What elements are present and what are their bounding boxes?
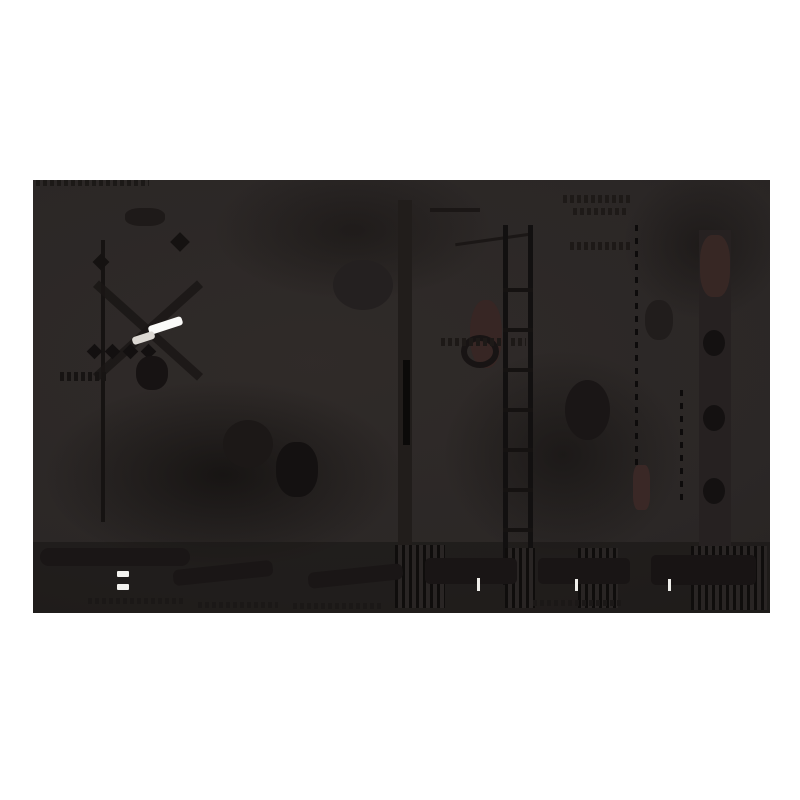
blob-top-left	[125, 208, 165, 226]
caption-marks-bottom-2	[198, 602, 278, 608]
blob-center-1	[223, 420, 273, 468]
line-top-center	[430, 208, 480, 212]
right-blob-3	[703, 478, 725, 504]
band-bottom-left	[40, 548, 190, 566]
diamond-row-1	[87, 344, 103, 360]
caption-marks-top	[36, 180, 149, 186]
underexposed-photo	[33, 180, 770, 613]
light-dash-2	[575, 579, 578, 591]
column-center-core	[403, 360, 410, 445]
slab-bottom-1	[425, 558, 517, 584]
right-blob-1	[703, 330, 725, 356]
equals-mark-top	[117, 571, 129, 577]
blob-under-streak	[136, 356, 168, 390]
dotted-line-right-2	[680, 390, 683, 500]
blob-center-2	[276, 442, 318, 497]
maroon-patch-lower-right	[633, 465, 650, 510]
diamond-top	[170, 232, 190, 252]
caption-marks-bottom-4	[533, 600, 623, 606]
blob-right-upper	[645, 300, 673, 340]
slab-bottom-3	[651, 555, 756, 585]
light-dash-3	[668, 579, 671, 591]
soft-shadow-center-right	[443, 350, 683, 560]
equals-mark-bottom	[117, 584, 129, 590]
right-blob-2	[703, 405, 725, 431]
marks-top-right-2	[573, 208, 628, 215]
caption-marks-bottom-3	[293, 603, 383, 609]
dotted-line-right	[635, 225, 638, 465]
soft-shadow-top-right	[623, 180, 770, 320]
marks-left-w	[60, 372, 106, 381]
highlight-streak-tail	[131, 331, 155, 346]
marks-top-right	[563, 195, 633, 203]
slab-bottom-2	[538, 558, 630, 584]
blob-top-center	[333, 260, 393, 310]
marks-mid-right	[570, 242, 630, 250]
light-dash-1	[477, 578, 480, 591]
ladder-rungs	[503, 288, 533, 532]
caption-marks-bottom	[88, 598, 183, 604]
pole-left-diamond	[93, 254, 110, 271]
blob-mid-right	[565, 380, 610, 440]
maroon-patch-right	[700, 235, 730, 297]
